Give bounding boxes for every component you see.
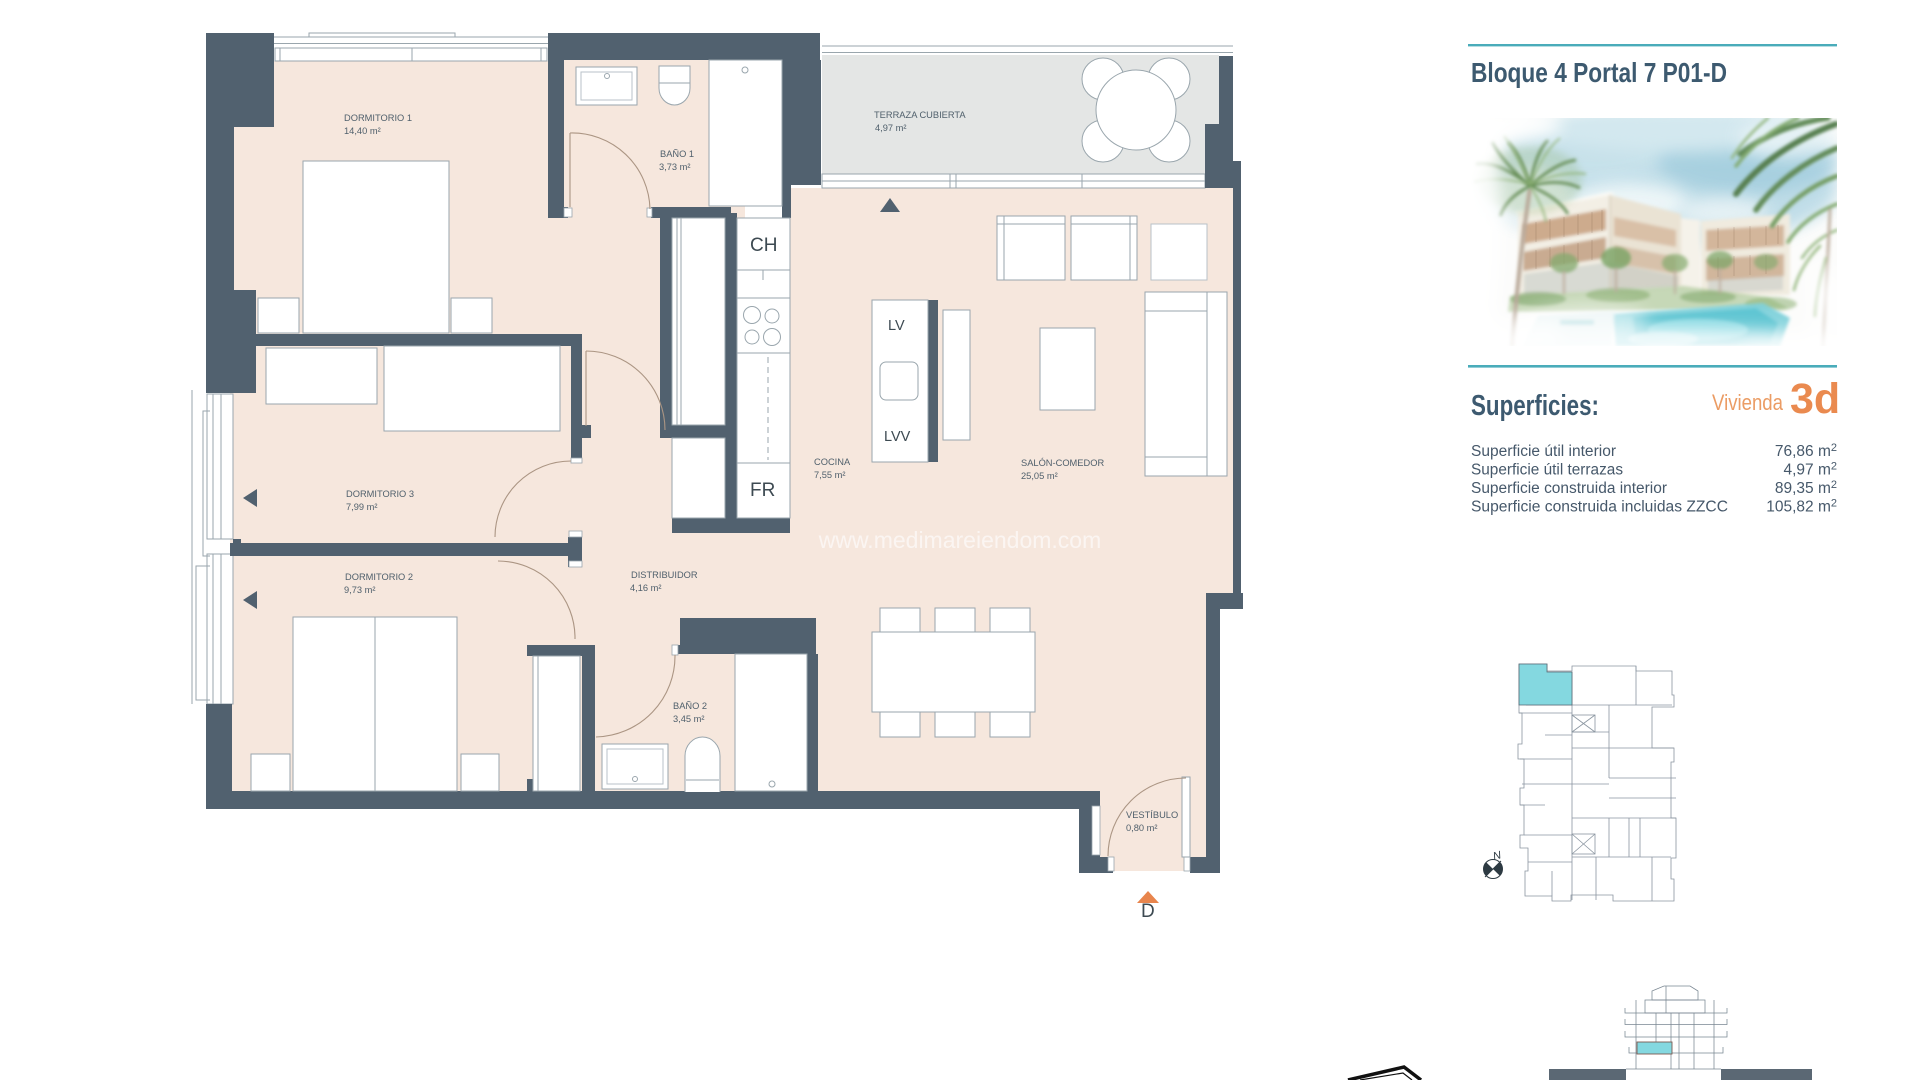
svg-text:9,73 m²: 9,73 m²	[344, 585, 376, 595]
svg-text:14,40 m²: 14,40 m²	[344, 126, 381, 136]
svg-text:CH: CH	[750, 235, 777, 256]
svg-text:SALÓN-COMEDOR: SALÓN-COMEDOR	[1021, 458, 1104, 468]
svg-text:3d: 3d	[1790, 375, 1840, 423]
svg-text:DORMITORIO 1: DORMITORIO 1	[344, 113, 412, 123]
svg-text:7,55 m²: 7,55 m²	[814, 470, 846, 480]
svg-text:25,05 m²: 25,05 m²	[1021, 471, 1058, 481]
svg-text:LVV: LVV	[884, 429, 911, 445]
svg-text:3,73 m²: 3,73 m²	[659, 162, 691, 172]
svg-text:Superficie útil interior: Superficie útil interior	[1471, 443, 1616, 460]
svg-text:FR: FR	[750, 480, 775, 501]
svg-text:Superficie útil terrazas: Superficie útil terrazas	[1471, 462, 1623, 479]
svg-text:4,16 m²: 4,16 m²	[630, 583, 662, 593]
svg-text:VESTÍBULO: VESTÍBULO	[1126, 810, 1178, 820]
svg-text:LV: LV	[888, 318, 905, 334]
svg-text:BAÑO 1: BAÑO 1	[660, 149, 694, 159]
svg-text:Superficie construida interior: Superficie construida interior	[1471, 480, 1667, 497]
svg-text:DISTRIBUIDOR: DISTRIBUIDOR	[631, 570, 698, 580]
svg-text:Vivienda: Vivienda	[1712, 390, 1784, 415]
svg-text:www.medimareiendom.com: www.medimareiendom.com	[818, 527, 1101, 553]
svg-text:0,80 m²: 0,80 m²	[1126, 823, 1158, 833]
svg-text:Bloque 4 Portal 7 P01-D: Bloque 4 Portal 7 P01-D	[1471, 57, 1727, 88]
svg-text:DORMITORIO 2: DORMITORIO 2	[345, 572, 413, 582]
svg-text:4,97 m²: 4,97 m²	[875, 123, 907, 133]
svg-text:105,82 m2: 105,82 m2	[1766, 498, 1837, 516]
svg-text:3,45 m²: 3,45 m²	[673, 714, 705, 724]
svg-text:D: D	[1141, 901, 1155, 922]
svg-text:Superficies:: Superficies:	[1471, 390, 1599, 422]
svg-text:DORMITORIO 3: DORMITORIO 3	[346, 489, 414, 499]
svg-text:76,86 m2: 76,86 m2	[1775, 442, 1837, 460]
svg-text:7,99 m²: 7,99 m²	[346, 502, 378, 512]
svg-text:89,35 m2: 89,35 m2	[1775, 479, 1837, 497]
svg-text:COCINA: COCINA	[814, 457, 851, 467]
svg-text:Superficie construida incluida: Superficie construida incluidas ZZCC	[1471, 499, 1728, 516]
svg-text:N: N	[1492, 849, 1503, 863]
svg-text:TERRAZA CUBIERTA: TERRAZA CUBIERTA	[874, 110, 966, 120]
svg-text:BAÑO 2: BAÑO 2	[673, 701, 707, 711]
svg-text:4,97 m2: 4,97 m2	[1783, 461, 1837, 479]
